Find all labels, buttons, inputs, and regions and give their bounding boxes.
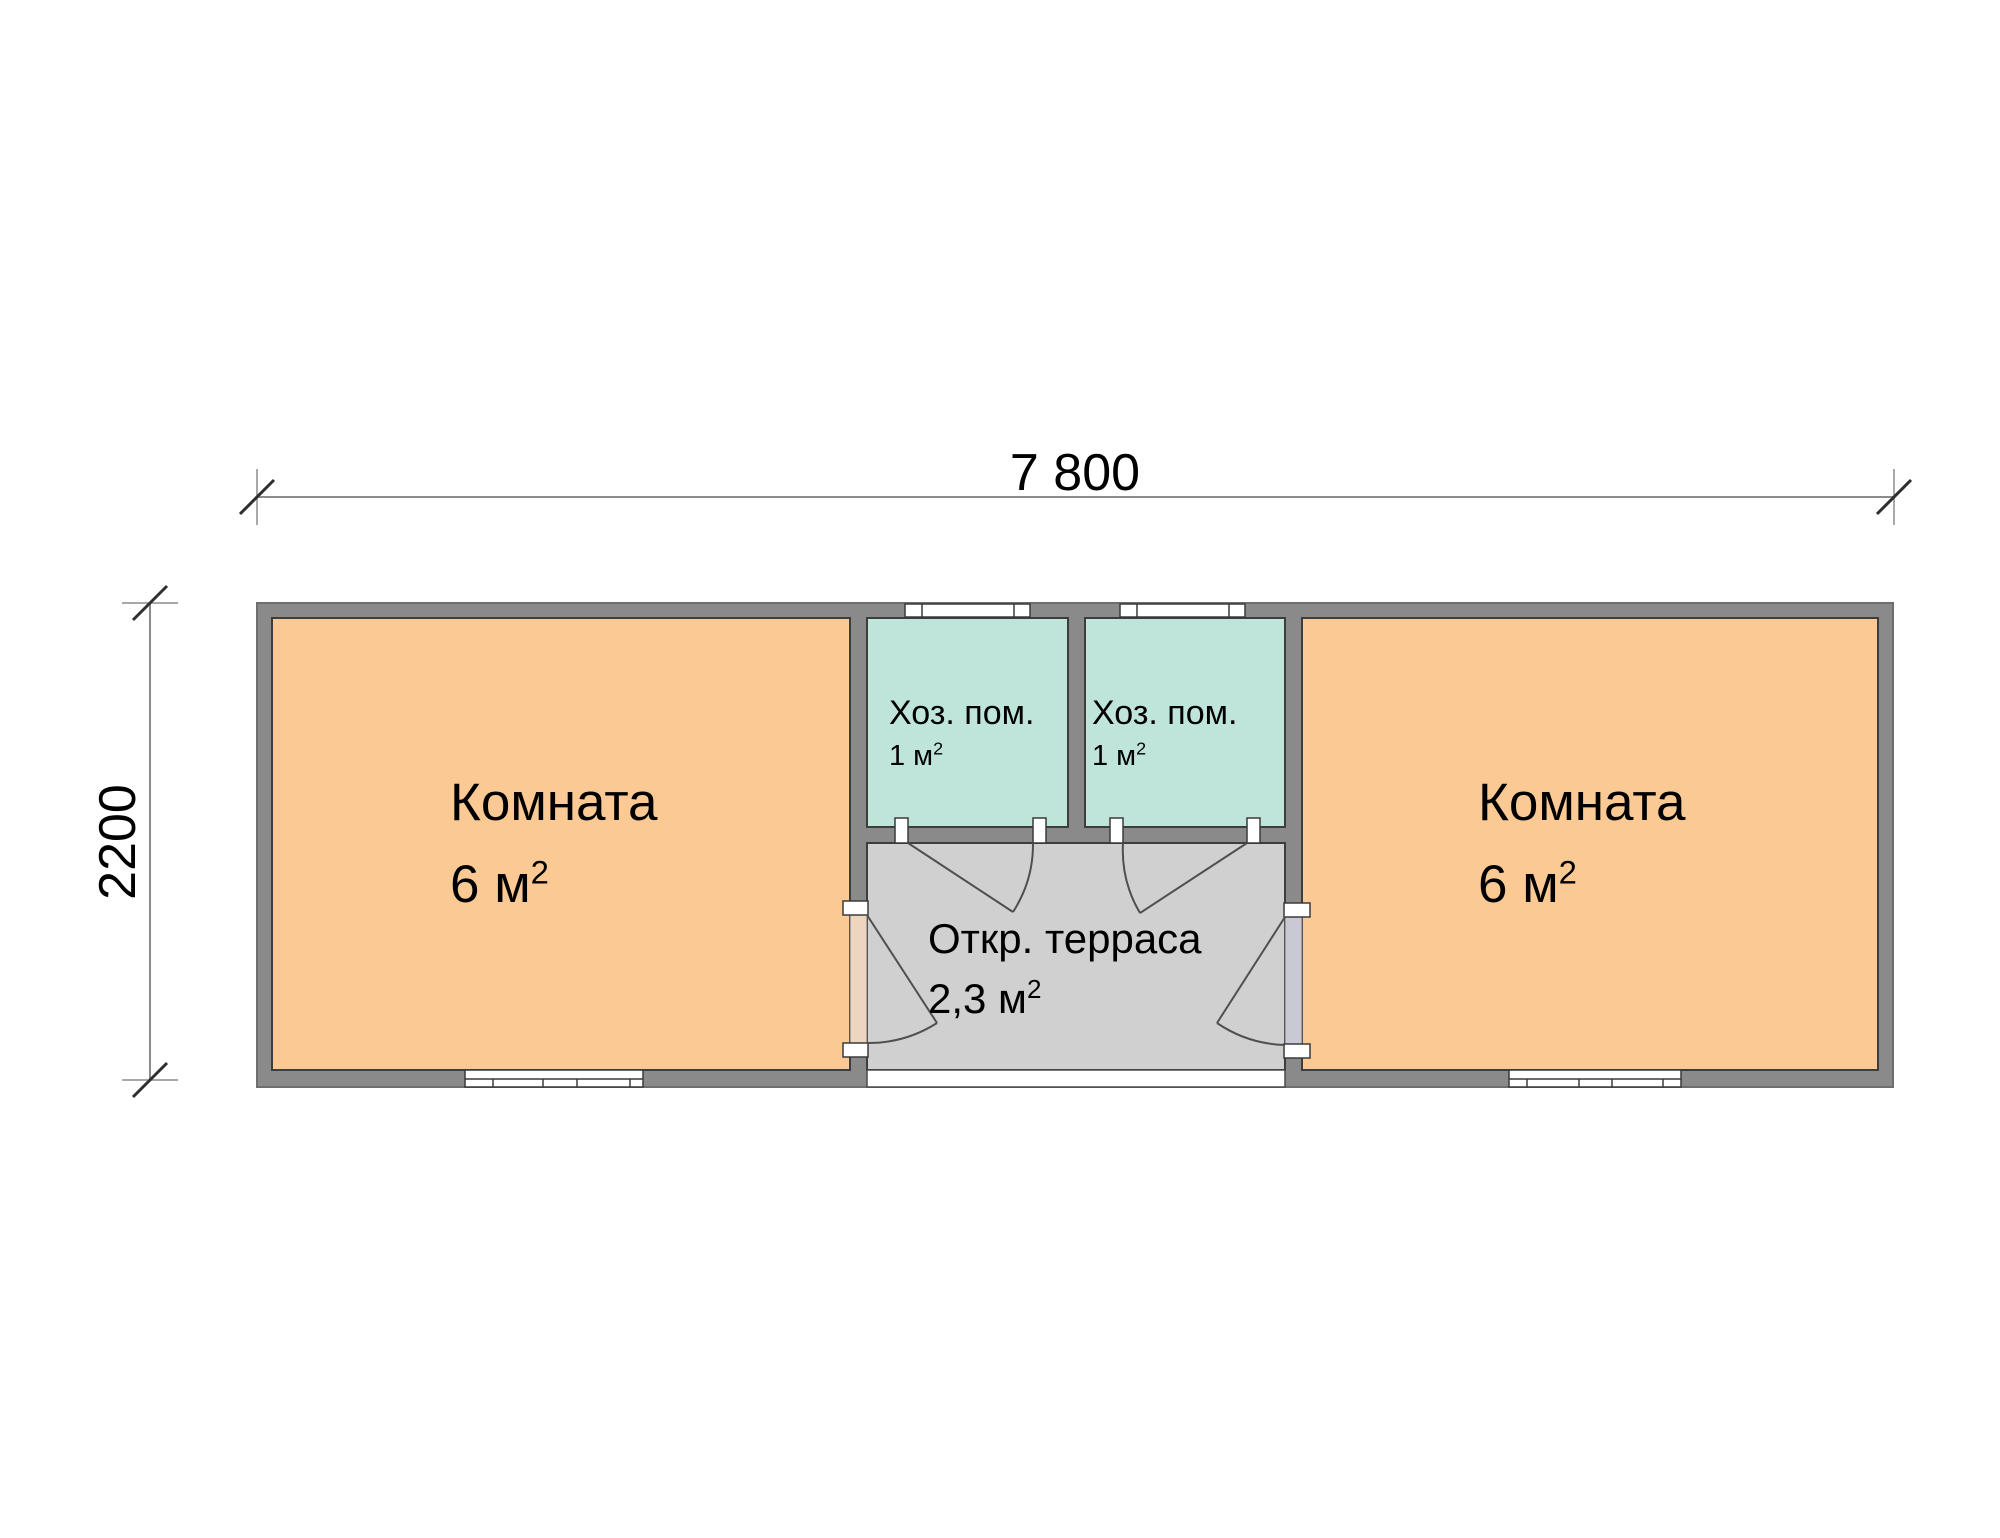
terrace-area: 2,3 м2 (928, 978, 1041, 1020)
right-room-floor (1302, 618, 1878, 1070)
utility-left-area: 1 м2 (889, 742, 943, 771)
floor-plan-drawing (0, 0, 2000, 1538)
right-room-door-opening (1285, 917, 1302, 1045)
right-room-area: 6 м2 (1478, 858, 1577, 911)
terrace-open-edge (867, 1070, 1285, 1087)
left-room-area: 6 м2 (450, 858, 549, 911)
left-room-name: Комната (450, 776, 658, 829)
left-room-door-opening (850, 915, 867, 1043)
right-room-name: Комната (1478, 776, 1686, 829)
right-room-window (1509, 1070, 1681, 1087)
utility-left-name: Хоз. пом. (889, 696, 1034, 730)
utility-left-window (905, 604, 1030, 617)
height-dimension-label: 2200 (92, 784, 144, 900)
terrace-name: Откр. терраса (928, 918, 1202, 960)
utility-right-name: Хоз. пом. (1092, 696, 1237, 730)
width-dimension-label: 7 800 (1010, 447, 1140, 499)
left-room-floor (272, 618, 850, 1070)
utility-right-area: 1 м2 (1092, 742, 1146, 771)
floor-plan-canvas: 7 800 2200 Комната 6 м2 Комната 6 м2 Хоз… (0, 0, 2000, 1538)
left-room-window (465, 1070, 643, 1087)
utility-right-window (1120, 604, 1245, 617)
